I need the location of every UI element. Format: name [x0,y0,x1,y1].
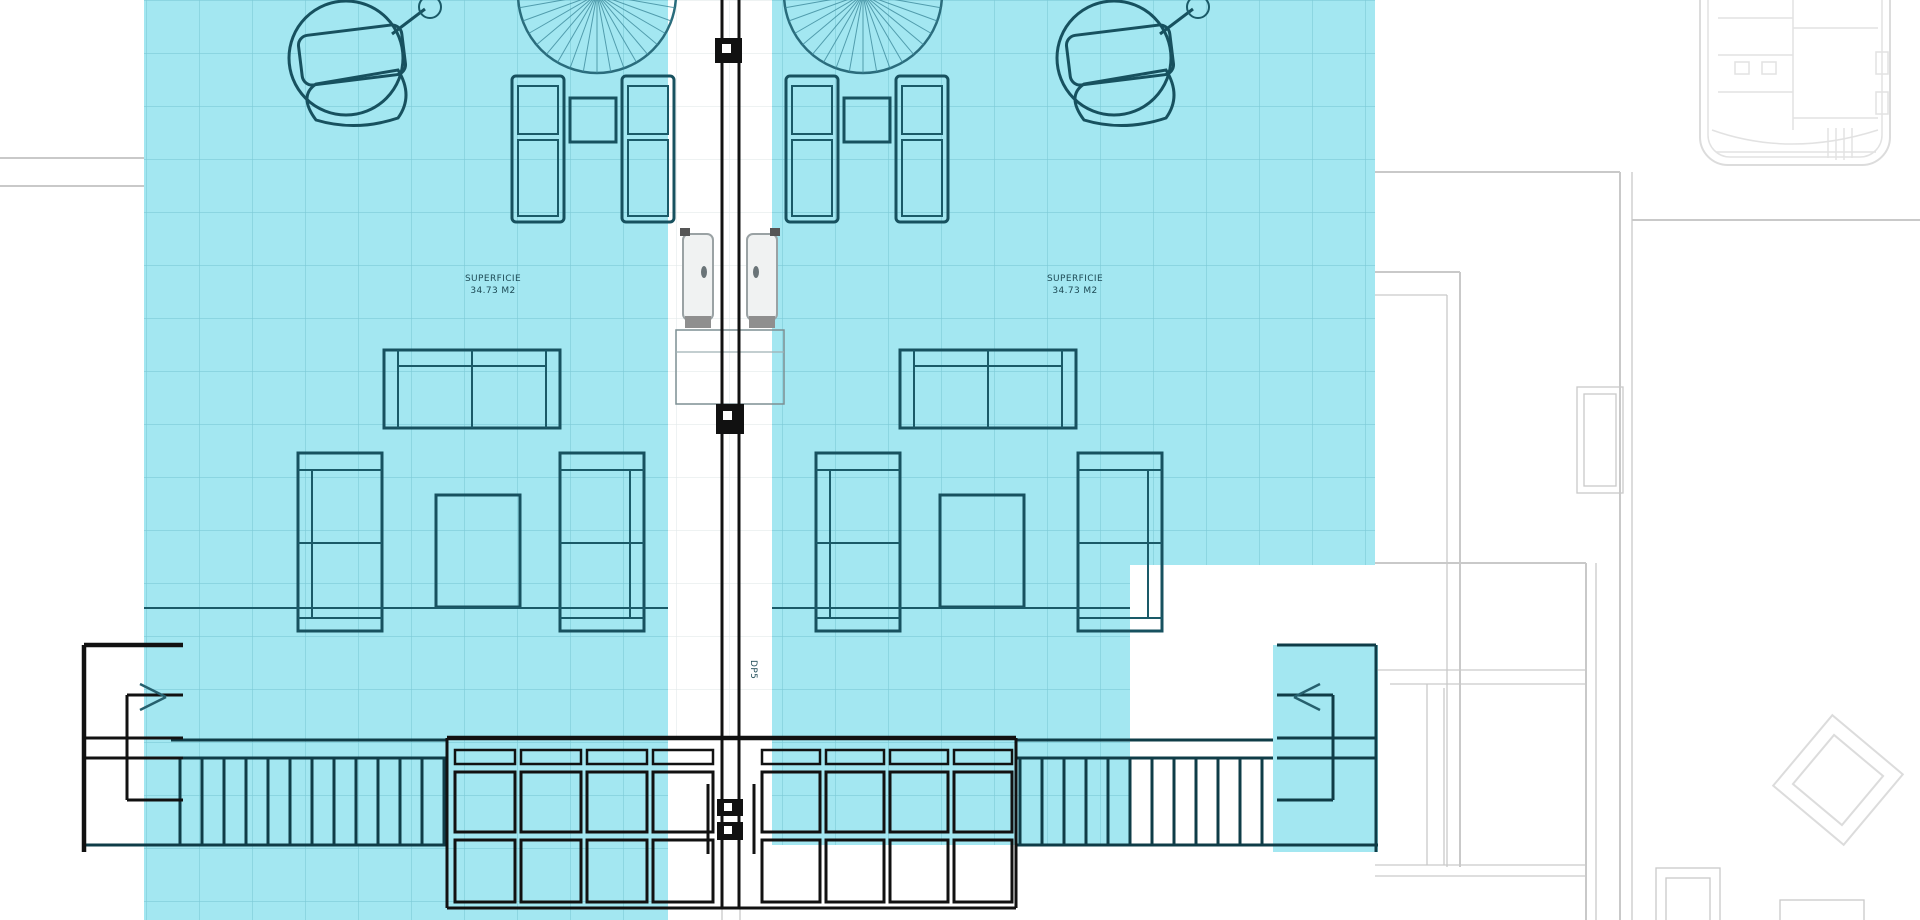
wall-column [716,404,744,434]
area-label-right-line1: SUPERFICIE [1047,274,1103,284]
door-left [680,228,713,328]
area-label-right-line2: 34.73 M2 [1052,286,1097,296]
corridor-ghost-grid [668,0,772,738]
wall-column [715,38,742,63]
door-right [747,228,780,328]
neighbor-detail-fragment [1700,0,1890,165]
wall-mark-label: DP5 [748,660,758,679]
diamond-marker [1773,715,1903,845]
floor-plan-screenshot: SUPERFICIE 34.73 M2 SUPERFICIE 34.73 M2 … [0,0,1920,920]
area-label-left-line1: SUPERFICIE [465,274,521,284]
floor-plan-canvas: SUPERFICIE 34.73 M2 SUPERFICIE 34.73 M2 … [0,0,1920,920]
wall-column [717,799,743,816]
area-label-left-line2: 34.73 M2 [470,286,515,296]
wall-column [717,822,743,840]
